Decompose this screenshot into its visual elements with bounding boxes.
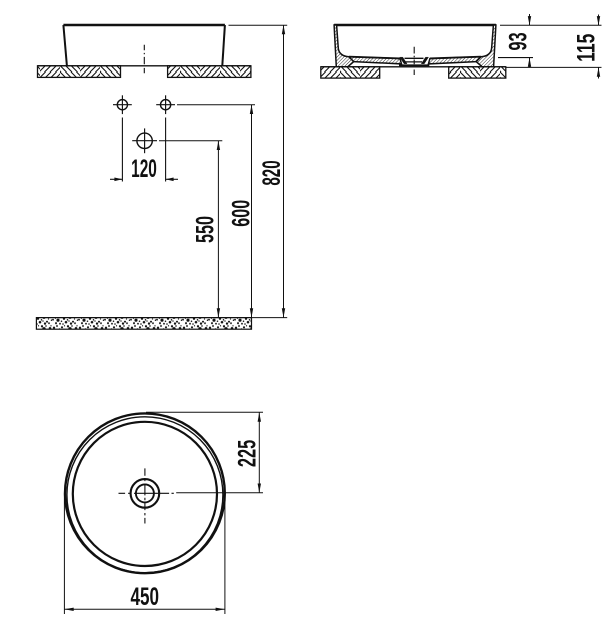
svg-text:820: 820 — [258, 160, 286, 185]
svg-text:550: 550 — [192, 216, 220, 243]
svg-text:600: 600 — [228, 200, 256, 227]
svg-text:450: 450 — [131, 583, 160, 611]
svg-text:93: 93 — [505, 32, 533, 50]
svg-text:225: 225 — [234, 440, 262, 467]
svg-text:120: 120 — [131, 155, 157, 183]
svg-text:115: 115 — [573, 34, 601, 62]
